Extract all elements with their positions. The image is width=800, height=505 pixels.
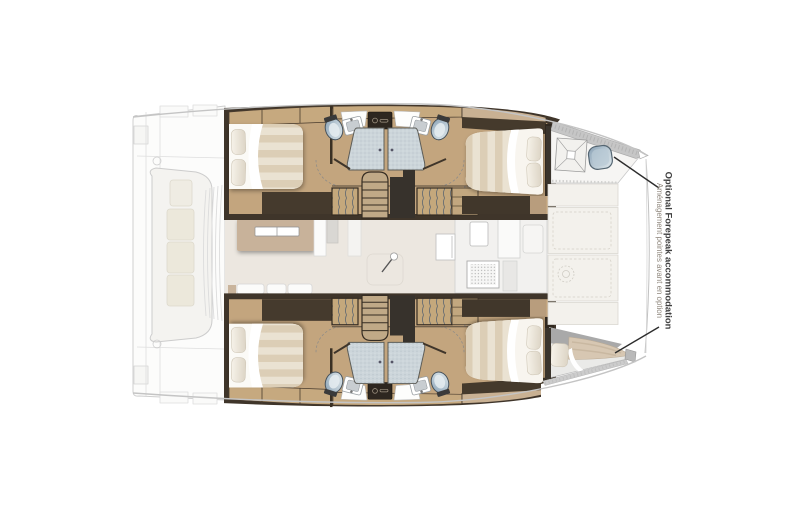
svg-text:Aménagement pointes avant en o: Aménagement pointes avant en option [655,183,664,318]
